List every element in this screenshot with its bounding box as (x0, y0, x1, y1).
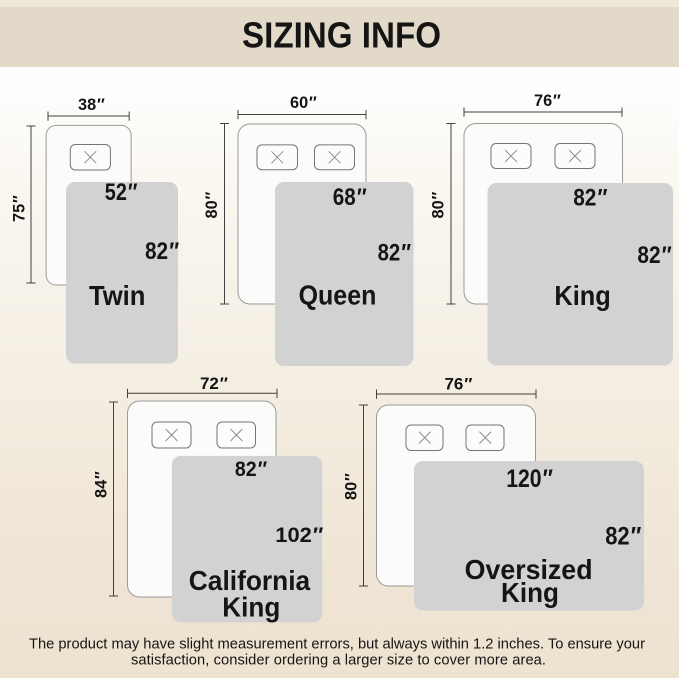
svg-text:75″: 75″ (10, 195, 29, 222)
svg-text:60″: 60″ (290, 93, 317, 112)
svg-text:76″: 76″ (445, 374, 473, 393)
svg-text:Twin: Twin (89, 280, 146, 311)
svg-text:82″: 82″ (605, 523, 641, 551)
svg-text:Queen: Queen (299, 280, 377, 311)
svg-text:72″: 72″ (200, 374, 228, 393)
svg-text:82″: 82″ (235, 458, 267, 481)
svg-text:80″: 80″ (342, 473, 361, 500)
svg-text:The product may have slight me: The product may have slight measurement … (29, 637, 645, 653)
svg-text:King: King (554, 280, 610, 311)
svg-text:satisfaction, consider orderin: satisfaction, consider ordering a larger… (131, 653, 546, 669)
svg-text:SIZING INFO: SIZING INFO (242, 15, 441, 56)
svg-text:102″: 102″ (275, 524, 323, 547)
svg-text:82″: 82″ (145, 238, 179, 265)
svg-text:84″: 84″ (92, 471, 111, 498)
svg-text:80″: 80″ (202, 192, 221, 219)
svg-text:68″: 68″ (333, 184, 367, 211)
svg-text:King: King (501, 577, 559, 608)
svg-text:King: King (222, 591, 280, 622)
svg-text:82″: 82″ (378, 240, 412, 267)
svg-text:82″: 82″ (637, 242, 672, 269)
svg-text:80″: 80″ (429, 192, 448, 219)
svg-text:120″: 120″ (506, 465, 552, 493)
svg-text:82″: 82″ (573, 184, 608, 211)
svg-text:38″: 38″ (78, 95, 105, 114)
svg-text:52″: 52″ (105, 179, 138, 206)
svg-text:76″: 76″ (534, 91, 561, 110)
